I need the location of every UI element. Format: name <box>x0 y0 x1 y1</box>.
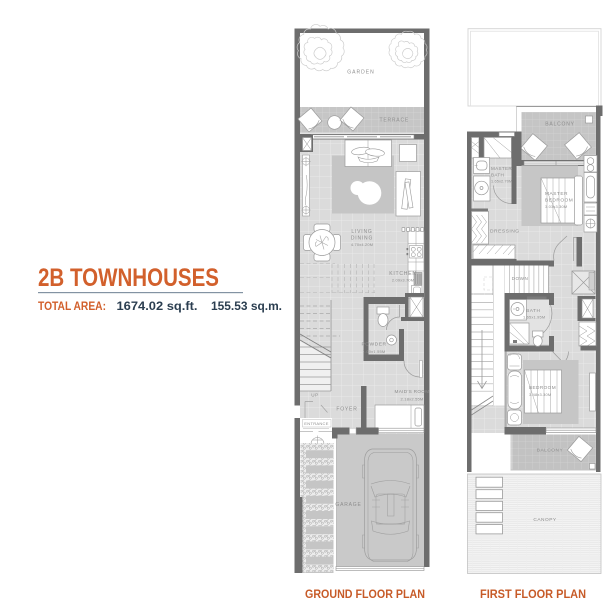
svg-text:TERRACE: TERRACE <box>380 118 410 124</box>
svg-text:FIRST FLOOR PLAN: FIRST FLOOR PLAN <box>480 587 586 601</box>
svg-text:POWDER: POWDER <box>361 342 386 348</box>
svg-text:3.48x3.30M: 3.48x3.30M <box>529 392 551 397</box>
svg-text:ENTRANCE: ENTRANCE <box>304 421 328 426</box>
svg-text:BATH: BATH <box>491 173 504 178</box>
svg-text:1.65x2.70M: 1.65x2.70M <box>491 180 512 184</box>
svg-text:MASTER: MASTER <box>545 191 568 197</box>
svg-text:1.00x1.55M: 1.00x1.55M <box>363 349 386 354</box>
svg-text:1.65x1.95M: 1.65x1.95M <box>523 315 545 320</box>
svg-text:KITCHEN: KITCHEN <box>389 271 417 277</box>
svg-text:155.53 sq.m.: 155.53 sq.m. <box>211 301 282 313</box>
svg-text:2B TOWNHOUSES: 2B TOWNHOUSES <box>38 264 219 292</box>
svg-text:DINING: DINING <box>351 236 373 242</box>
svg-text:3.03x3.30M: 3.03x3.30M <box>545 204 567 209</box>
svg-text:GARDEN: GARDEN <box>347 70 374 76</box>
svg-text:BATH: BATH <box>526 308 540 314</box>
svg-text:BEDROOM: BEDROOM <box>545 198 573 204</box>
svg-text:1674.02 sq.ft.: 1674.02 sq.ft. <box>117 301 198 313</box>
svg-text:LIVING: LIVING <box>351 229 372 235</box>
svg-text:BEDROOM: BEDROOM <box>529 385 556 390</box>
svg-text:BALCONY: BALCONY <box>545 122 575 128</box>
svg-text:CANOPY: CANOPY <box>533 517 557 523</box>
svg-text:2.18x2.55M: 2.18x2.55M <box>401 397 424 402</box>
svg-text:MAID'S ROOM: MAID'S ROOM <box>395 389 430 394</box>
svg-text:FOYER: FOYER <box>336 407 357 413</box>
svg-text:GROUND FLOOR PLAN: GROUND FLOOR PLAN <box>305 587 425 601</box>
svg-text:GARAGE: GARAGE <box>335 502 361 508</box>
svg-text:DRESSING: DRESSING <box>490 229 520 235</box>
svg-text:2.09x3.70M: 2.09x3.70M <box>392 278 414 283</box>
svg-text:TOTAL AREA:: TOTAL AREA: <box>38 301 106 313</box>
svg-text:UP: UP <box>311 393 318 398</box>
svg-text:DOWN: DOWN <box>512 276 529 281</box>
svg-text:MASTER: MASTER <box>491 166 512 171</box>
svg-text:4.70x4.20M: 4.70x4.20M <box>351 242 373 247</box>
svg-text:BALCONY: BALCONY <box>537 448 564 454</box>
